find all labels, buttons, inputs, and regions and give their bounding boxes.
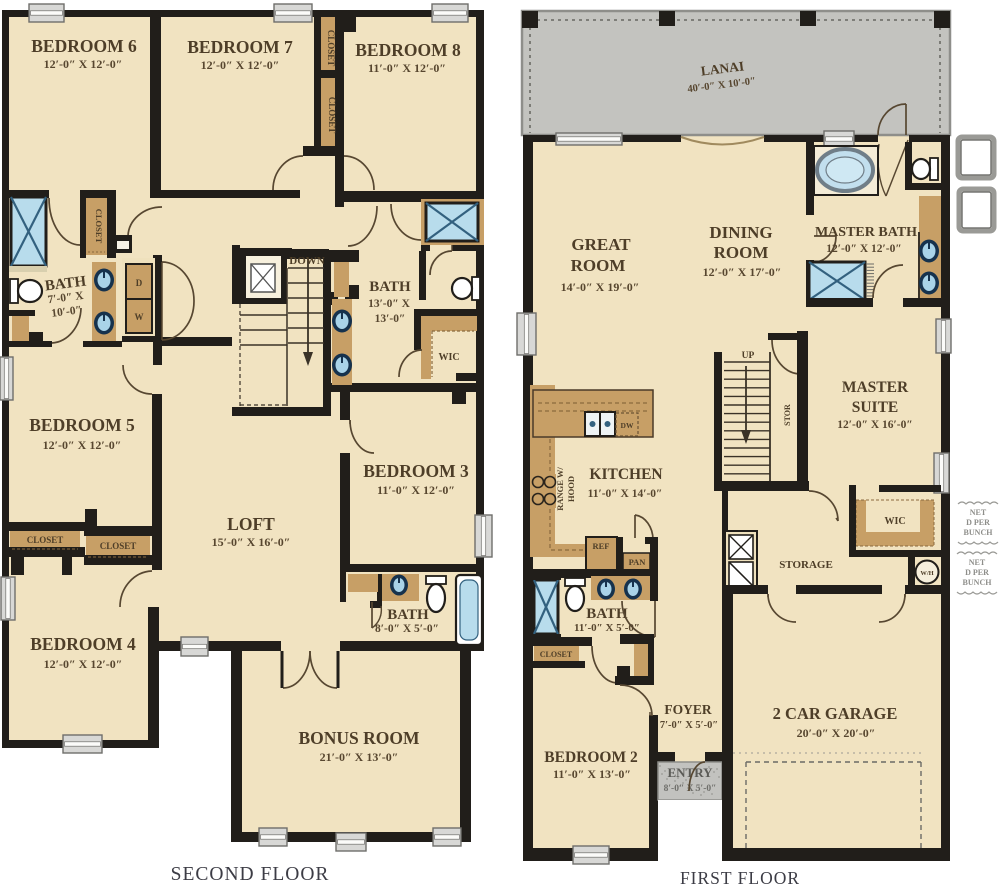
svg-text:CLOSET: CLOSET [540,650,573,659]
svg-text:BEDROOM 3: BEDROOM 3 [363,461,469,481]
svg-text:STORAGE: STORAGE [779,559,833,571]
svg-text:UP: UP [742,351,755,361]
svg-text:12′-0″ X 12′-0″: 12′-0″ X 12′-0″ [43,438,122,452]
svg-text:KITCHEN: KITCHEN [589,466,662,483]
svg-text:12′-0″ X 12′-0″: 12′-0″ X 12′-0″ [44,57,123,71]
svg-text:20′-0″ X 20′-0″: 20′-0″ X 20′-0″ [797,726,876,740]
svg-text:RANGE W/: RANGE W/ [555,467,565,511]
svg-text:BATH: BATH [369,279,411,295]
svg-text:NET: NET [969,558,986,567]
svg-text:PAN: PAN [629,557,647,567]
svg-text:21′-0″ X 13′-0″: 21′-0″ X 13′-0″ [320,750,399,764]
svg-text:ROOM: ROOM [571,256,626,275]
svg-text:D: D [136,278,143,288]
svg-text:12′-0″ X 12′-0″: 12′-0″ X 12′-0″ [826,243,901,255]
svg-text:13′-0″ X: 13′-0″ X [368,298,411,310]
svg-text:FOYER: FOYER [664,702,712,717]
svg-text:W/H: W/H [920,570,933,577]
svg-text:MASTER: MASTER [842,379,909,396]
svg-text:12′-0″ X 16′-0″: 12′-0″ X 16′-0″ [837,419,912,431]
svg-text:W: W [135,312,144,322]
svg-text:BATH: BATH [387,607,429,623]
svg-text:D PER: D PER [966,518,990,527]
svg-text:BEDROOM 2: BEDROOM 2 [544,749,638,766]
svg-text:SUITE: SUITE [852,399,899,416]
svg-text:7′-0″ X 5′-0″: 7′-0″ X 5′-0″ [660,720,718,731]
svg-text:11′-0″ X 12′-0″: 11′-0″ X 12′-0″ [368,61,446,75]
svg-text:WIC: WIC [438,352,459,363]
svg-text:LOFT: LOFT [227,514,275,534]
svg-text:CLOSET: CLOSET [27,535,64,545]
svg-text:BUNCH: BUNCH [964,528,994,537]
svg-text:BEDROOM 6: BEDROOM 6 [31,36,137,56]
svg-text:12′-0″ X 12′-0″: 12′-0″ X 12′-0″ [201,58,280,72]
svg-text:8′-0″ X 5′-0″: 8′-0″ X 5′-0″ [375,623,439,635]
svg-text:11′-0″ X 13′-0″: 11′-0″ X 13′-0″ [553,767,631,781]
svg-text:BEDROOM 5: BEDROOM 5 [29,415,135,435]
svg-text:DW: DW [621,421,634,430]
svg-text:11′-0″ X 12′-0″: 11′-0″ X 12′-0″ [377,483,455,497]
svg-text:SECOND FLOOR: SECOND FLOOR [171,864,330,885]
svg-text:NET: NET [970,508,987,517]
svg-text:HOOD: HOOD [566,476,576,502]
svg-text:DINING: DINING [709,223,772,242]
svg-text:D PER: D PER [965,568,989,577]
svg-text:GREAT: GREAT [571,235,631,254]
svg-text:CLOSET: CLOSET [327,97,337,134]
svg-text:ROOM: ROOM [714,243,769,262]
svg-text:CLOSET: CLOSET [94,209,104,244]
svg-text:15′-0″ X 16′-0″: 15′-0″ X 16′-0″ [212,535,291,549]
svg-text:12′-0″ X 12′-0″: 12′-0″ X 12′-0″ [44,657,123,671]
svg-text:FIRST FLOOR: FIRST FLOOR [680,868,800,888]
svg-text:BEDROOM 4: BEDROOM 4 [30,634,136,654]
svg-text:BEDROOM 8: BEDROOM 8 [355,40,461,60]
svg-text:BONUS ROOM: BONUS ROOM [298,728,420,748]
svg-text:STOR: STOR [783,404,792,426]
svg-text:12′-0″ X 17′-0″: 12′-0″ X 17′-0″ [703,265,782,279]
svg-text:BUNCH: BUNCH [963,578,993,587]
svg-text:BATH: BATH [586,606,628,622]
svg-text:14′-0″ X 19′-0″: 14′-0″ X 19′-0″ [561,280,640,294]
svg-text:13′-0″: 13′-0″ [375,313,406,325]
svg-text:CLOSET: CLOSET [100,541,137,551]
svg-text:BEDROOM 7: BEDROOM 7 [187,37,293,57]
svg-text:MASTER BATH: MASTER BATH [815,225,917,240]
svg-text:DOWN: DOWN [289,255,325,267]
svg-text:2 CAR GARAGE: 2 CAR GARAGE [773,704,898,723]
svg-text:11′-0″ X 14′-0″: 11′-0″ X 14′-0″ [588,488,663,500]
svg-text:CLOSET: CLOSET [326,30,336,67]
svg-text:REF: REF [593,541,610,551]
svg-text:WIC: WIC [884,516,905,527]
